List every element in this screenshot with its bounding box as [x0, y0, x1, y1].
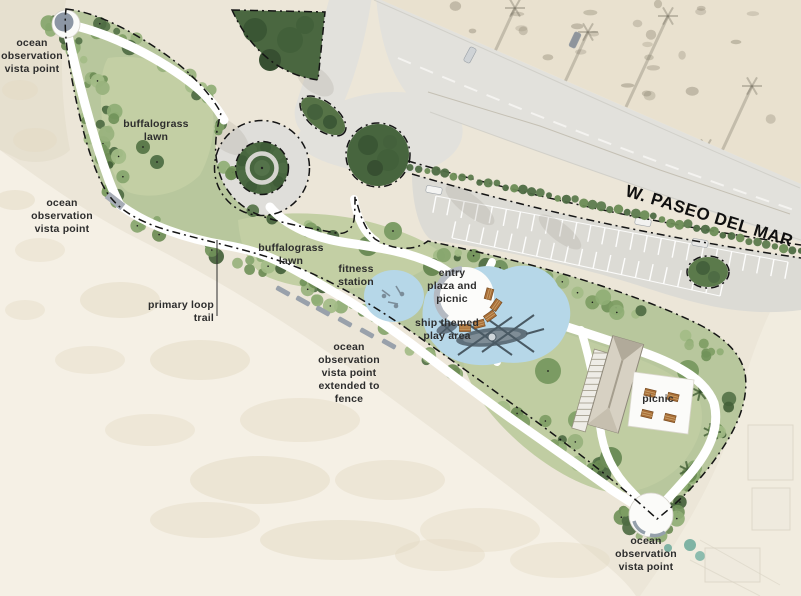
label-lawn-nw: buffalograss lawn	[116, 118, 196, 144]
label-vista-point-nw: ocean observation vista point	[0, 37, 64, 76]
label-vista-point-w: ocean observation vista point	[22, 197, 102, 236]
label-fitness-station: fitness station	[326, 263, 386, 289]
corner-planting-blob	[347, 124, 409, 186]
label-play-area: ship themed play area	[400, 317, 494, 343]
label-entry-plaza: entry plaza and picnic	[417, 267, 487, 306]
park-site-plan: ocean observation vista point buffalogra…	[0, 0, 801, 596]
vista-point-nw-overlook	[55, 13, 74, 32]
label-lawn-center: buffalograss lawn	[251, 242, 331, 268]
label-picnic: picnic	[633, 393, 683, 406]
label-vista-point-sw: ocean observation vista point extended t…	[304, 341, 394, 406]
label-primary-loop-trail: primary loop trail	[134, 299, 214, 325]
site-plan-graphic	[0, 0, 801, 596]
label-vista-point-se: ocean observation vista point	[601, 535, 691, 574]
